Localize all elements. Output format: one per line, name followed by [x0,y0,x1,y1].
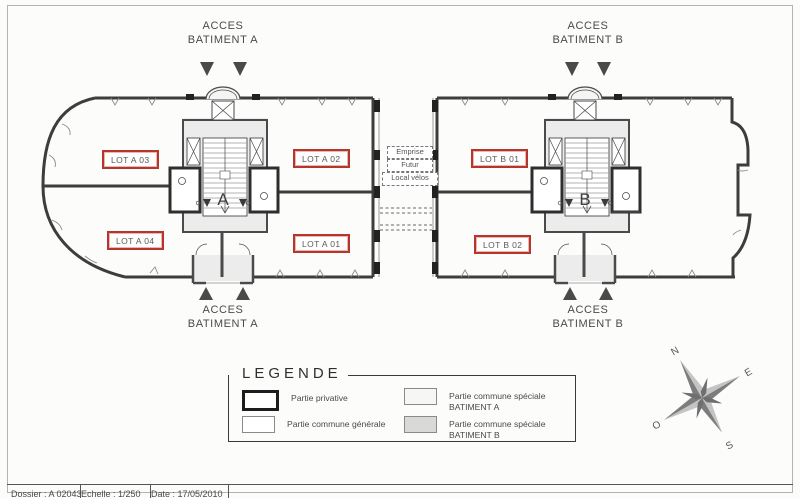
legend: LEGENDE Partie privative Partie commune … [228,364,576,446]
lot-label-a01: LOT A 01 [293,234,350,253]
access-label-top-a: ACCES BATIMENT A [167,20,279,47]
legend-item-line2: BATIMENT B [449,430,546,441]
access-label-top-b: ACCES BATIMENT B [532,20,644,47]
lot-label-b02: LOT B 02 [474,235,531,254]
access-line: ACCES [568,20,609,32]
lot-label-b01: LOT B 01 [471,149,528,168]
access-arrow [236,287,250,300]
legend-item-line2: BATIMENT A [449,402,546,413]
compass-east-label: E [743,366,755,379]
access-arrow [597,62,611,76]
corridor-between-buildings [374,98,438,277]
access-arrow [599,287,613,300]
corridor-label-emprise: Emprise [387,146,433,159]
corridor-label-local-velos: Local vélos [382,172,438,186]
building-a-letter: A [205,190,241,210]
swatch-speciale-batiment-b [404,416,437,433]
access-line: ACCES [203,20,244,32]
access-label-bottom-b: ACCES BATIMENT B [532,304,644,331]
swatch-commune-generale [242,416,275,433]
legend-title: LEGENDE [242,365,348,382]
legend-item-partie-privative: Partie privative [242,390,348,411]
legend-item-label: Partie privative [291,390,348,404]
footer-echelle-cell: Echelle : 1/250 [78,484,151,498]
access-label-bottom-a: ACCES BATIMENT A [167,304,279,331]
access-arrow [199,287,213,300]
legend-item-speciale-batiment-b: Partie commune spéciale BATIMENT B [404,416,546,440]
access-line: ACCES [203,304,244,316]
access-building-line: BATIMENT A [188,34,258,46]
compass-rose-icon: N E S O [623,319,781,480]
footer-dossier-cell: Dossier : A 02043 [8,484,81,498]
legend-item-line1: Partie commune spéciale [449,419,546,429]
access-building-line: BATIMENT B [553,34,624,46]
footer-date-cell: Date : 17/05/2010 [148,484,229,498]
access-building-line: BATIMENT A [188,318,258,330]
plan-sheet: N E S O ACCES BATIMENT A ACCES BATIMENT … [0,0,800,498]
lot-label-a04: LOT A 04 [107,231,164,250]
legend-title-rule [346,375,576,376]
legend-item-label: Partie commune spéciale BATIMENT A [449,388,546,412]
access-arrow [563,287,577,300]
swatch-speciale-batiment-a [404,388,437,405]
corridor-label-futur: Futur [387,159,433,172]
lot-label-a02: LOT A 02 [293,149,350,168]
legend-item-label: Partie commune spéciale BATIMENT B [449,416,546,440]
compass-west-label: O [651,419,663,433]
compass-south-label: S [724,439,736,452]
access-arrow [233,62,247,76]
access-arrow [565,62,579,76]
legend-item-commune-generale: Partie commune générale [242,416,385,433]
access-line: ACCES [568,304,609,316]
lot-label-a03: LOT A 03 [102,150,159,169]
access-arrow [200,62,214,76]
legend-item-speciale-batiment-a: Partie commune spéciale BATIMENT A [404,388,546,412]
access-building-line: BATIMENT B [553,318,624,330]
legend-item-line1: Partie commune spéciale [449,391,546,401]
building-b-letter: B [567,190,603,210]
swatch-partie-privative [242,390,279,411]
compass-north-label: N [669,345,681,358]
legend-item-label: Partie commune générale [287,416,385,430]
